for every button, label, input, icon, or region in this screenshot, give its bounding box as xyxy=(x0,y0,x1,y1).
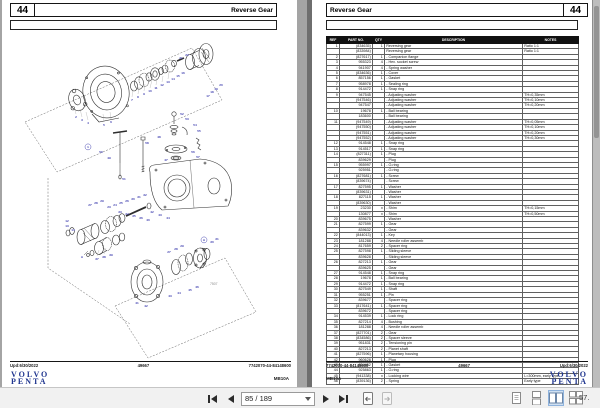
part-label: 49 xyxy=(107,156,111,160)
part-label: 17 xyxy=(206,94,210,98)
left-footer-updated: Upd:6/30/2022 xyxy=(10,363,38,368)
single-page-view-button[interactable] xyxy=(508,390,524,406)
part-label: 34 xyxy=(125,212,129,216)
part-label: 39 xyxy=(109,253,113,257)
part-label: 16 xyxy=(181,71,185,75)
part-label: 43 xyxy=(168,294,172,298)
vertical-scrollbar[interactable] xyxy=(592,0,600,387)
page-indicator-combobox[interactable]: 85 / 189 xyxy=(241,392,315,406)
last-page-button[interactable] xyxy=(336,392,351,406)
part-label: 54 xyxy=(193,123,197,127)
table-cell: - Spring xyxy=(385,379,523,384)
part-label: 44 xyxy=(166,216,170,220)
left-page: 44 Reverse Gear xyxy=(2,0,297,387)
part-label: 45 xyxy=(188,288,192,292)
part-label: 35 xyxy=(132,214,136,218)
next-page-icon xyxy=(323,395,329,403)
right-page-title: Reverse Gear xyxy=(327,4,563,16)
first-page-icon xyxy=(208,395,210,403)
part-label: 11 xyxy=(154,86,158,90)
part-label: 15 xyxy=(176,74,180,78)
right-page-header: Reverse Gear 44 xyxy=(326,3,588,17)
page-nav-group: 85 / 189 xyxy=(205,391,394,406)
logo-line2: PENTA xyxy=(11,378,49,385)
column-header: REF xyxy=(327,37,340,44)
continuous-pages-icon xyxy=(530,391,543,405)
left-footer-line: Upd:6/30/2022 49667 7742070-44-84148600 xyxy=(10,363,291,368)
part-label: 20 xyxy=(219,83,223,87)
part-label: 57 xyxy=(196,155,200,159)
part-label: 44 xyxy=(177,291,181,295)
left-model-code: MB10A xyxy=(274,376,289,381)
part-label: 12 xyxy=(160,83,164,87)
left-footer-doc: 7742070-44-84148600 xyxy=(249,363,291,368)
part-label: 32 xyxy=(143,193,147,197)
right-page: Reverse Gear 44 REFPART NO.QTYDESCRIPTIO… xyxy=(312,0,592,387)
part-label: A xyxy=(203,238,206,242)
page-indicator-text: 85 / 189 xyxy=(245,394,272,403)
part-label: 33 xyxy=(118,210,122,214)
bottom-toolbar: 85 / 189 xyxy=(0,387,600,408)
column-header: PART NO. xyxy=(340,37,373,44)
part-label: 48 xyxy=(157,135,161,139)
previous-page-button[interactable] xyxy=(223,392,238,406)
part-label: 8 xyxy=(137,95,139,99)
part-label: 46 xyxy=(195,285,199,289)
column-header: DESCRIPTION xyxy=(385,37,523,44)
exploded-diagram: 2345617891011121314151621221718192050495… xyxy=(2,0,297,387)
part-label: 13 xyxy=(166,80,170,84)
part-label: 28 xyxy=(94,201,98,205)
diagram-frame-lines xyxy=(25,48,256,358)
table-cell: 2 xyxy=(373,379,385,384)
first-page-button[interactable] xyxy=(205,392,220,406)
parts-table-body: 1(834635)1Reversing gearRatio 1:1(833984… xyxy=(327,44,579,385)
part-label: 56 xyxy=(191,150,195,154)
part-label: 58 xyxy=(145,141,149,145)
page-layout-group xyxy=(508,390,584,406)
part-label: 31 xyxy=(137,195,141,199)
part-label: 9 xyxy=(143,92,145,96)
part-label: 53 xyxy=(185,117,189,121)
last-page-icon xyxy=(339,395,345,403)
left-footer-code: 49667 xyxy=(138,363,150,368)
part-label: 12 xyxy=(65,219,69,223)
part-label: 55 xyxy=(197,129,201,133)
part-label: 14 xyxy=(71,228,75,232)
table-cell: (839136) xyxy=(340,379,373,384)
part-label: 50 xyxy=(99,150,103,154)
right-footer-rule xyxy=(326,361,588,362)
next-page-button[interactable] xyxy=(318,392,333,406)
left-footer-rule xyxy=(10,361,291,362)
part-label: 30 xyxy=(210,240,214,244)
table-row: 46(839136)2- SpringEarly type xyxy=(327,379,579,384)
part-label: 5 xyxy=(103,123,105,127)
part-label: 42 xyxy=(144,304,148,308)
view-history-group xyxy=(361,391,394,406)
previous-view-button[interactable] xyxy=(361,391,375,406)
two-page-icon xyxy=(549,391,563,405)
volvo-penta-logo: VOLVO PENTA xyxy=(11,371,49,385)
volvo-penta-logo: VOLVO PENTA xyxy=(550,371,588,385)
part-label: 29 xyxy=(100,199,104,203)
part-label: 22 xyxy=(185,53,189,57)
part-label: 6 xyxy=(110,120,112,124)
right-footer-code: 49667 xyxy=(458,363,470,368)
parts-table: REFPART NO.QTYDESCRIPTIONNOTES 1(834635)… xyxy=(326,36,579,385)
part-label: 31 xyxy=(215,237,219,241)
part-label: 24 xyxy=(113,203,117,207)
right-footer-updated: Upd:6/30/2022 xyxy=(560,363,588,368)
zoom-level-label: 57. xyxy=(579,393,600,402)
single-page-icon xyxy=(510,391,523,405)
part-label: 42 xyxy=(150,210,154,214)
figure-number: 7507 xyxy=(210,282,218,286)
part-label: 28 xyxy=(174,247,178,251)
part-label: 23 xyxy=(107,205,111,209)
part-label: 3 xyxy=(81,118,83,122)
part-label: 25 xyxy=(119,201,123,205)
right-footer-line: 7742070-44-84148600 49667 Upd:6/30/2022 xyxy=(326,363,588,368)
part-label: A xyxy=(81,255,84,259)
part-label: 43 xyxy=(158,213,162,217)
next-view-button[interactable] xyxy=(380,391,394,406)
part-label: 2 xyxy=(75,115,77,119)
two-page-view-button[interactable] xyxy=(548,390,564,406)
part-label: 51 xyxy=(122,177,126,181)
part-label: 13 xyxy=(65,224,69,228)
part-label: 29 xyxy=(180,244,184,248)
parts-table-head: REFPART NO.QTYDESCRIPTIONNOTES xyxy=(327,37,579,44)
scrollbar-thumb[interactable] xyxy=(594,6,599,138)
part-label: 37 xyxy=(95,257,99,261)
part-label: 4 xyxy=(87,121,89,125)
part-label: 52 xyxy=(180,112,184,116)
part-label: 41 xyxy=(135,301,139,305)
part-label: 14 xyxy=(171,77,175,81)
prev-page-icon xyxy=(228,395,234,403)
part-label: 38 xyxy=(102,255,106,259)
part-label: 27 xyxy=(167,250,171,254)
column-header: QTY xyxy=(373,37,385,44)
right-page-subheader xyxy=(326,20,578,30)
chevron-down-icon xyxy=(305,397,311,401)
part-label: 27 xyxy=(88,203,92,207)
part-label: 47 xyxy=(164,158,168,162)
column-header: NOTES xyxy=(523,37,579,44)
right-page-number: 44 xyxy=(563,4,587,16)
part-label: 30 xyxy=(131,197,135,201)
leader-lines xyxy=(74,72,169,256)
part-label: 40 xyxy=(146,218,150,222)
right-footer-doc: 7742070-44-84148600 xyxy=(326,363,368,368)
pdf-viewer: 44 Reverse Gear xyxy=(0,0,600,408)
part-label: 1 xyxy=(87,145,89,149)
part-label: 36 xyxy=(139,216,143,220)
part-label: 10 xyxy=(148,89,152,93)
logo-line2: PENTA xyxy=(550,378,588,385)
part-label: 26 xyxy=(125,199,129,203)
right-model-code: MB10A xyxy=(326,376,341,381)
part-label: 7 xyxy=(131,98,133,102)
continuous-view-button[interactable] xyxy=(528,390,544,406)
part-label: 19 xyxy=(214,87,218,91)
table-header-row: REFPART NO.QTYDESCRIPTIONNOTES xyxy=(327,37,579,44)
diagram-parts xyxy=(66,44,232,303)
part-label: 21 xyxy=(179,56,183,60)
